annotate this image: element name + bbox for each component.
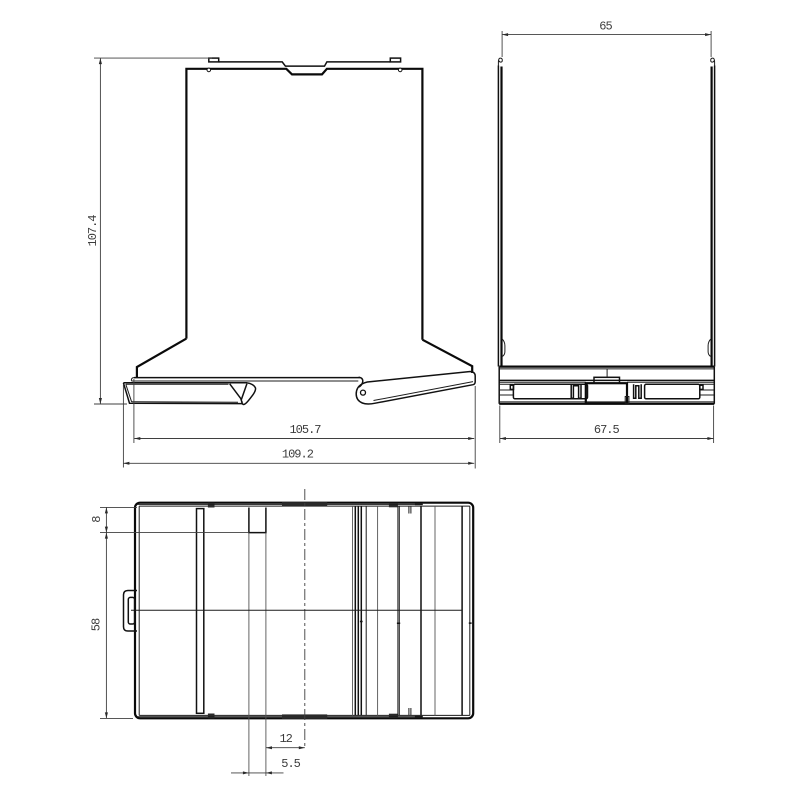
svg-text:109.2: 109.2 [282, 448, 314, 462]
svg-text:105.7: 105.7 [289, 423, 321, 437]
svg-text:65: 65 [599, 19, 612, 33]
svg-text:5.5: 5.5 [281, 757, 300, 771]
svg-text:107.4: 107.4 [86, 215, 100, 247]
svg-text:67.5: 67.5 [594, 423, 620, 437]
svg-text:12: 12 [279, 732, 292, 746]
svg-text:58: 58 [89, 618, 103, 631]
svg-text:8: 8 [90, 516, 104, 523]
